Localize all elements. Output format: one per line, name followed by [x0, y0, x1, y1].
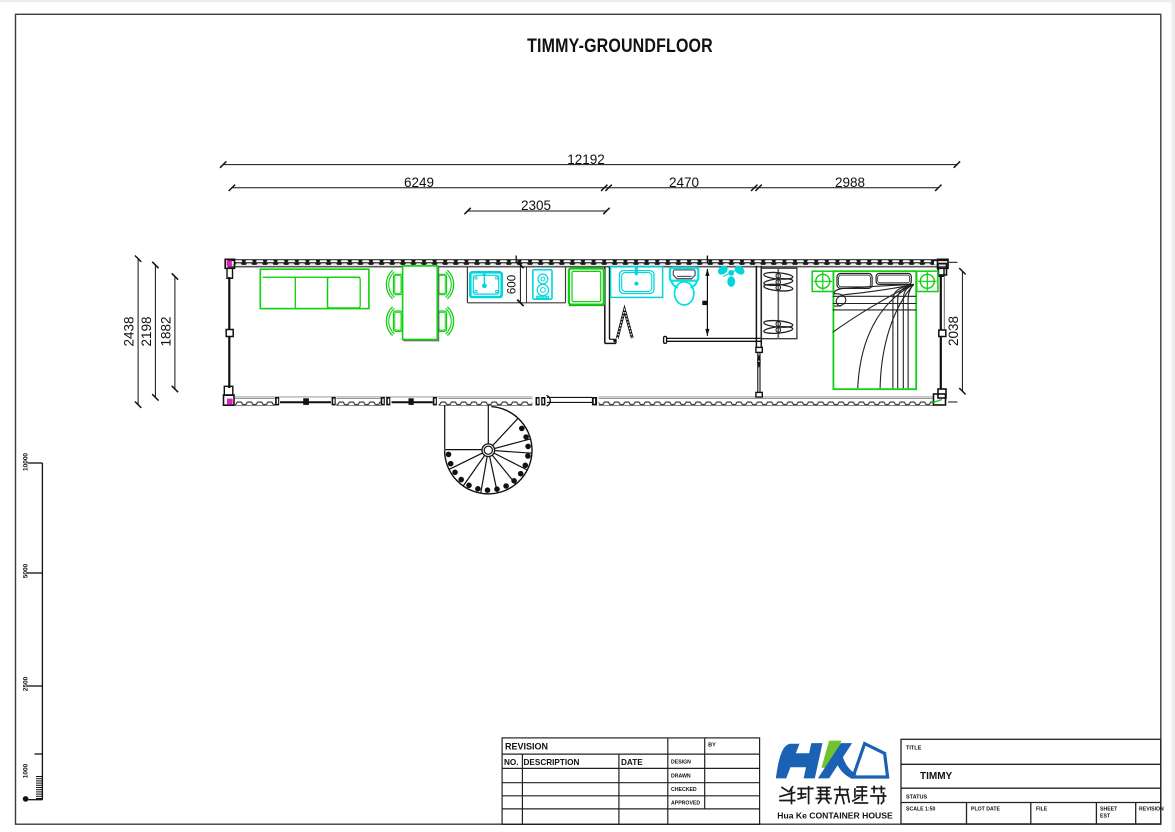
svg-text:TIMMY-GROUNDFLOOR: TIMMY-GROUNDFLOOR — [527, 35, 713, 57]
svg-text:PLOT DATE: PLOT DATE — [971, 807, 1001, 813]
svg-text:2988: 2988 — [835, 175, 865, 190]
svg-text:REVISION: REVISION — [1139, 807, 1164, 813]
svg-text:TIMMY: TIMMY — [920, 771, 953, 782]
svg-text:FILE: FILE — [1036, 807, 1048, 813]
svg-text:600: 600 — [507, 275, 519, 294]
svg-text:Hua Ke CONTAINER HOUSE: Hua Ke CONTAINER HOUSE — [777, 811, 893, 821]
svg-text:2038: 2038 — [946, 316, 961, 346]
svg-text:APPROVED: APPROVED — [671, 800, 700, 806]
svg-text:2305: 2305 — [521, 198, 551, 213]
svg-text:DESCRIPTION: DESCRIPTION — [524, 758, 580, 767]
svg-text:5000: 5000 — [23, 563, 30, 578]
svg-text:NO.: NO. — [504, 758, 519, 767]
svg-text:1000: 1000 — [23, 763, 30, 778]
svg-text:1882: 1882 — [158, 316, 173, 346]
svg-text:6249: 6249 — [404, 175, 434, 190]
svg-text:DATE: DATE — [621, 758, 643, 767]
svg-text:SCALE 1:50: SCALE 1:50 — [906, 807, 936, 813]
svg-text:EST: EST — [1100, 814, 1111, 820]
svg-text:STATUS: STATUS — [906, 795, 928, 801]
svg-text:SHEET: SHEET — [1100, 807, 1118, 813]
svg-text:2198: 2198 — [139, 316, 154, 346]
svg-text:DRAWN: DRAWN — [671, 774, 691, 780]
svg-text:12192: 12192 — [567, 152, 605, 167]
svg-text:2500: 2500 — [23, 676, 30, 691]
svg-text:REVISION: REVISION — [505, 742, 548, 752]
svg-text:10000: 10000 — [23, 453, 30, 471]
svg-text:TITLE: TITLE — [906, 746, 922, 752]
svg-text:BY: BY — [708, 743, 716, 749]
svg-text:CHECKED: CHECKED — [671, 787, 697, 793]
svg-text:2470: 2470 — [669, 175, 699, 190]
svg-text:2438: 2438 — [122, 316, 137, 346]
svg-text:DESIGN: DESIGN — [671, 760, 691, 766]
